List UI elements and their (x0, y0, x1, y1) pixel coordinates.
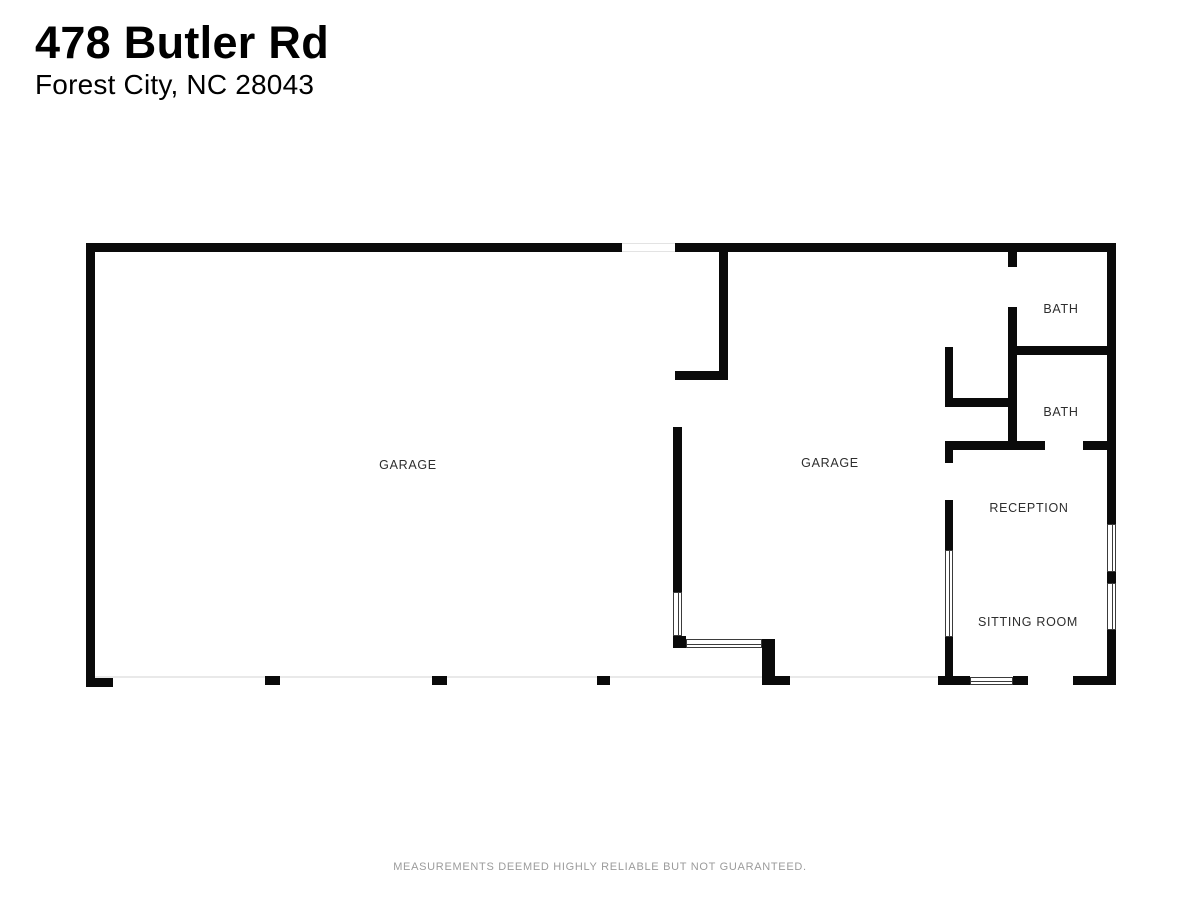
wall-mid-upper-vertical (719, 252, 728, 380)
wall-mid-corner-block (673, 636, 686, 648)
wall-mid-lower-vertical (673, 427, 682, 592)
window-reception-west (945, 550, 953, 637)
wall-hall-vertical (1008, 307, 1017, 450)
wall-post-south-2 (432, 676, 447, 685)
wall-closet-horizontal (945, 398, 1008, 407)
wall-outer-west (86, 243, 95, 687)
wall-outer-top-east (675, 243, 1116, 252)
wall-east-mid-block (1107, 572, 1116, 583)
wall-block-south-mid (762, 676, 790, 685)
wall-reception-west-mid (945, 500, 953, 550)
room-label-garage-right: GARAGE (801, 456, 859, 470)
wall-hall-top-stub (1008, 252, 1017, 267)
wall-mid-end-vertical (762, 639, 775, 676)
measurement-disclaimer: MEASUREMENTS DEEMED HIGHLY RELIABLE BUT … (0, 861, 1200, 873)
room-label-reception: RECEPTION (989, 501, 1068, 515)
opening-line-garage-front (95, 676, 938, 678)
window-mid-horizontal (686, 639, 762, 648)
wall-outer-top-west (86, 243, 622, 252)
wall-reception-west-lower (945, 637, 953, 685)
window-east-upper (1107, 524, 1116, 572)
wall-sitting-south-mid (1013, 676, 1028, 685)
room-label-bath-1: BATH (1043, 302, 1078, 316)
room-label-garage-left: GARAGE (379, 458, 437, 472)
wall-reception-top-west (945, 441, 1045, 450)
wall-mid-jog-horizontal (675, 371, 728, 380)
wall-sitting-south-west (938, 676, 970, 685)
wall-bath-divider (1008, 346, 1107, 355)
wall-post-south-1 (265, 676, 280, 685)
window-sitting-south (970, 677, 1013, 685)
wall-reception-west-upper (945, 441, 953, 463)
wall-post-south-3 (597, 676, 610, 685)
opening-top-garage-door (622, 243, 675, 252)
wall-reception-top-east (1083, 441, 1107, 450)
room-label-sitting-room: SITTING ROOM (978, 615, 1078, 629)
window-mid-vertical (673, 592, 682, 636)
wall-sitting-south-east (1073, 676, 1116, 685)
window-east-lower (1107, 583, 1116, 630)
floor-plan: GARAGE GARAGE BATH BATH RECEPTION SITTIN… (0, 0, 1200, 900)
wall-outer-east-upper (1107, 243, 1116, 524)
room-label-bath-2: BATH (1043, 405, 1078, 419)
